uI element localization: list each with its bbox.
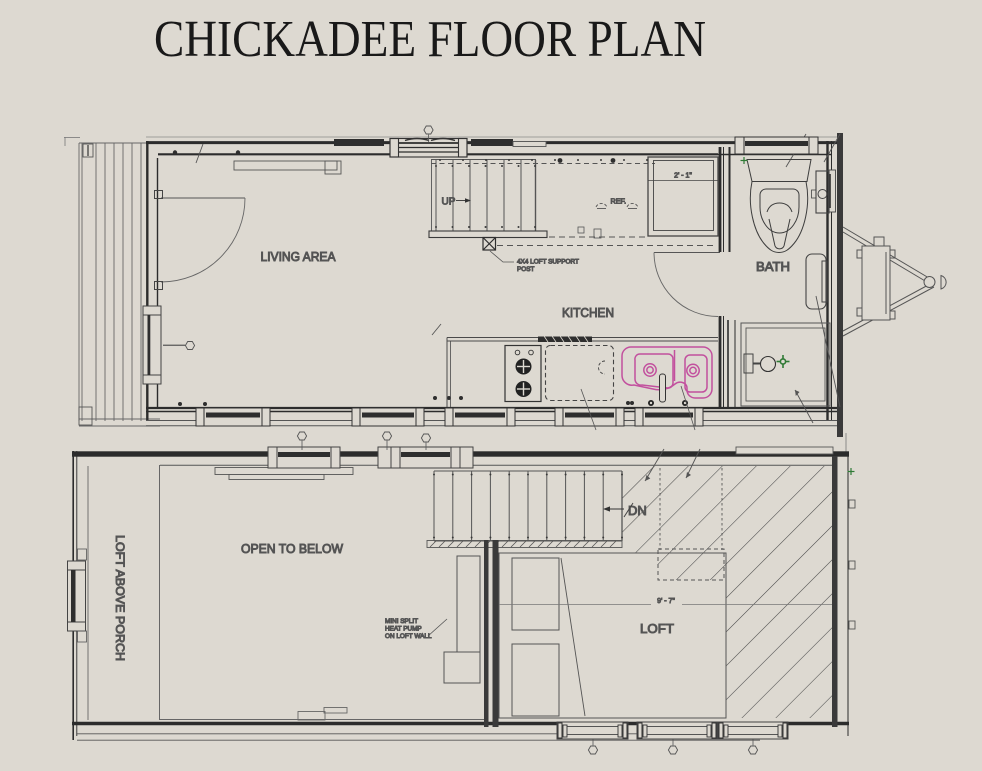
svg-text:KITCHEN: KITCHEN [562, 306, 614, 320]
svg-text:DN: DN [628, 503, 647, 518]
svg-text:9' - 7": 9' - 7" [657, 598, 675, 605]
svg-text:HEAT PUMP: HEAT PUMP [385, 626, 422, 633]
svg-text:4X4 LOFT SUPPORT: 4X4 LOFT SUPPORT [517, 259, 579, 266]
svg-text:OPEN TO BELOW: OPEN TO BELOW [241, 542, 343, 556]
svg-text:ON LOFT WALL: ON LOFT WALL [385, 633, 432, 640]
svg-text:CHICKADEE FLOOR PLAN: CHICKADEE FLOOR PLAN [154, 11, 706, 68]
svg-text:POST: POST [517, 266, 534, 273]
svg-text:LIVING AREA: LIVING AREA [261, 250, 337, 264]
svg-text:REF.: REF. [611, 197, 627, 206]
svg-text:LOFT ABOVE PORCH: LOFT ABOVE PORCH [113, 535, 125, 661]
svg-text:MINI SPLIT: MINI SPLIT [385, 618, 418, 625]
svg-text:LOFT: LOFT [640, 622, 674, 636]
svg-text:2' - 1": 2' - 1" [674, 173, 692, 180]
svg-text:UP: UP [442, 197, 456, 208]
svg-text:BATH: BATH [756, 260, 790, 274]
